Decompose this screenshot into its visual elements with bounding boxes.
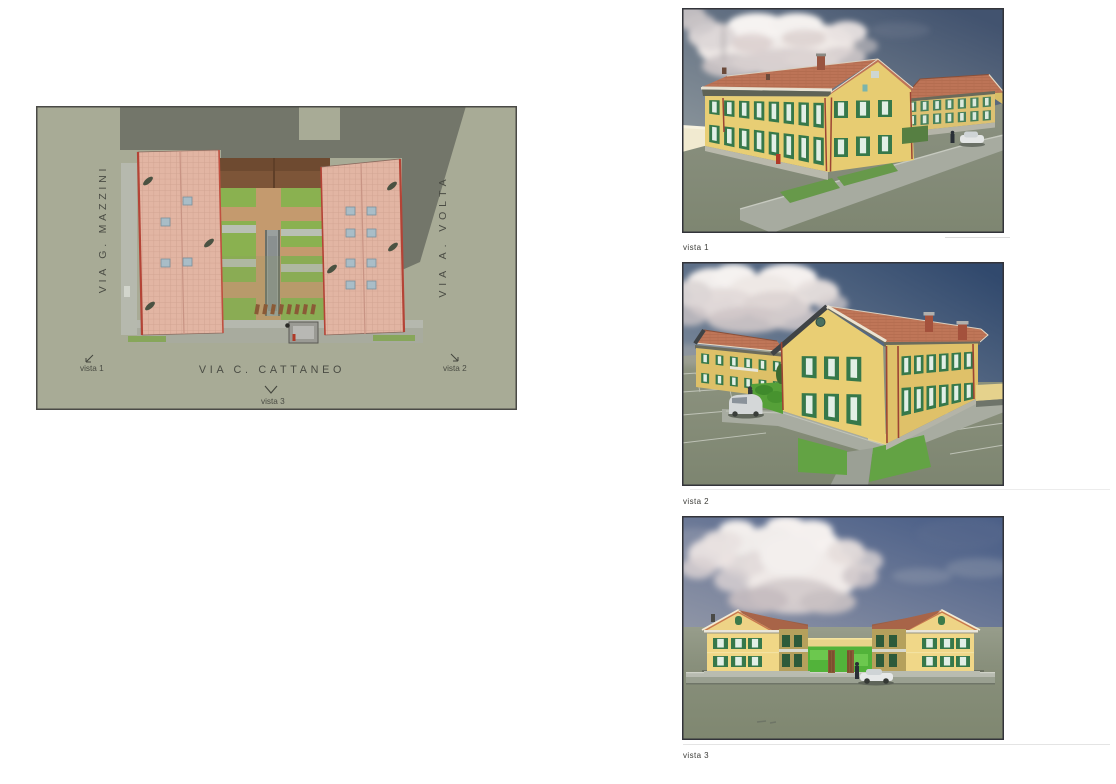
svg-text:vista 2: vista 2 — [443, 364, 467, 373]
svg-text:VIA C. CATTANEO: VIA C. CATTANEO — [199, 364, 345, 376]
svg-text:vista 3: vista 3 — [261, 397, 285, 406]
svg-text:vista 1: vista 1 — [80, 364, 104, 373]
svg-text:VIA A. VOLTA: VIA A. VOLTA — [437, 174, 449, 297]
svg-text:VIA G. MAZZINI: VIA G. MAZZINI — [97, 165, 109, 293]
